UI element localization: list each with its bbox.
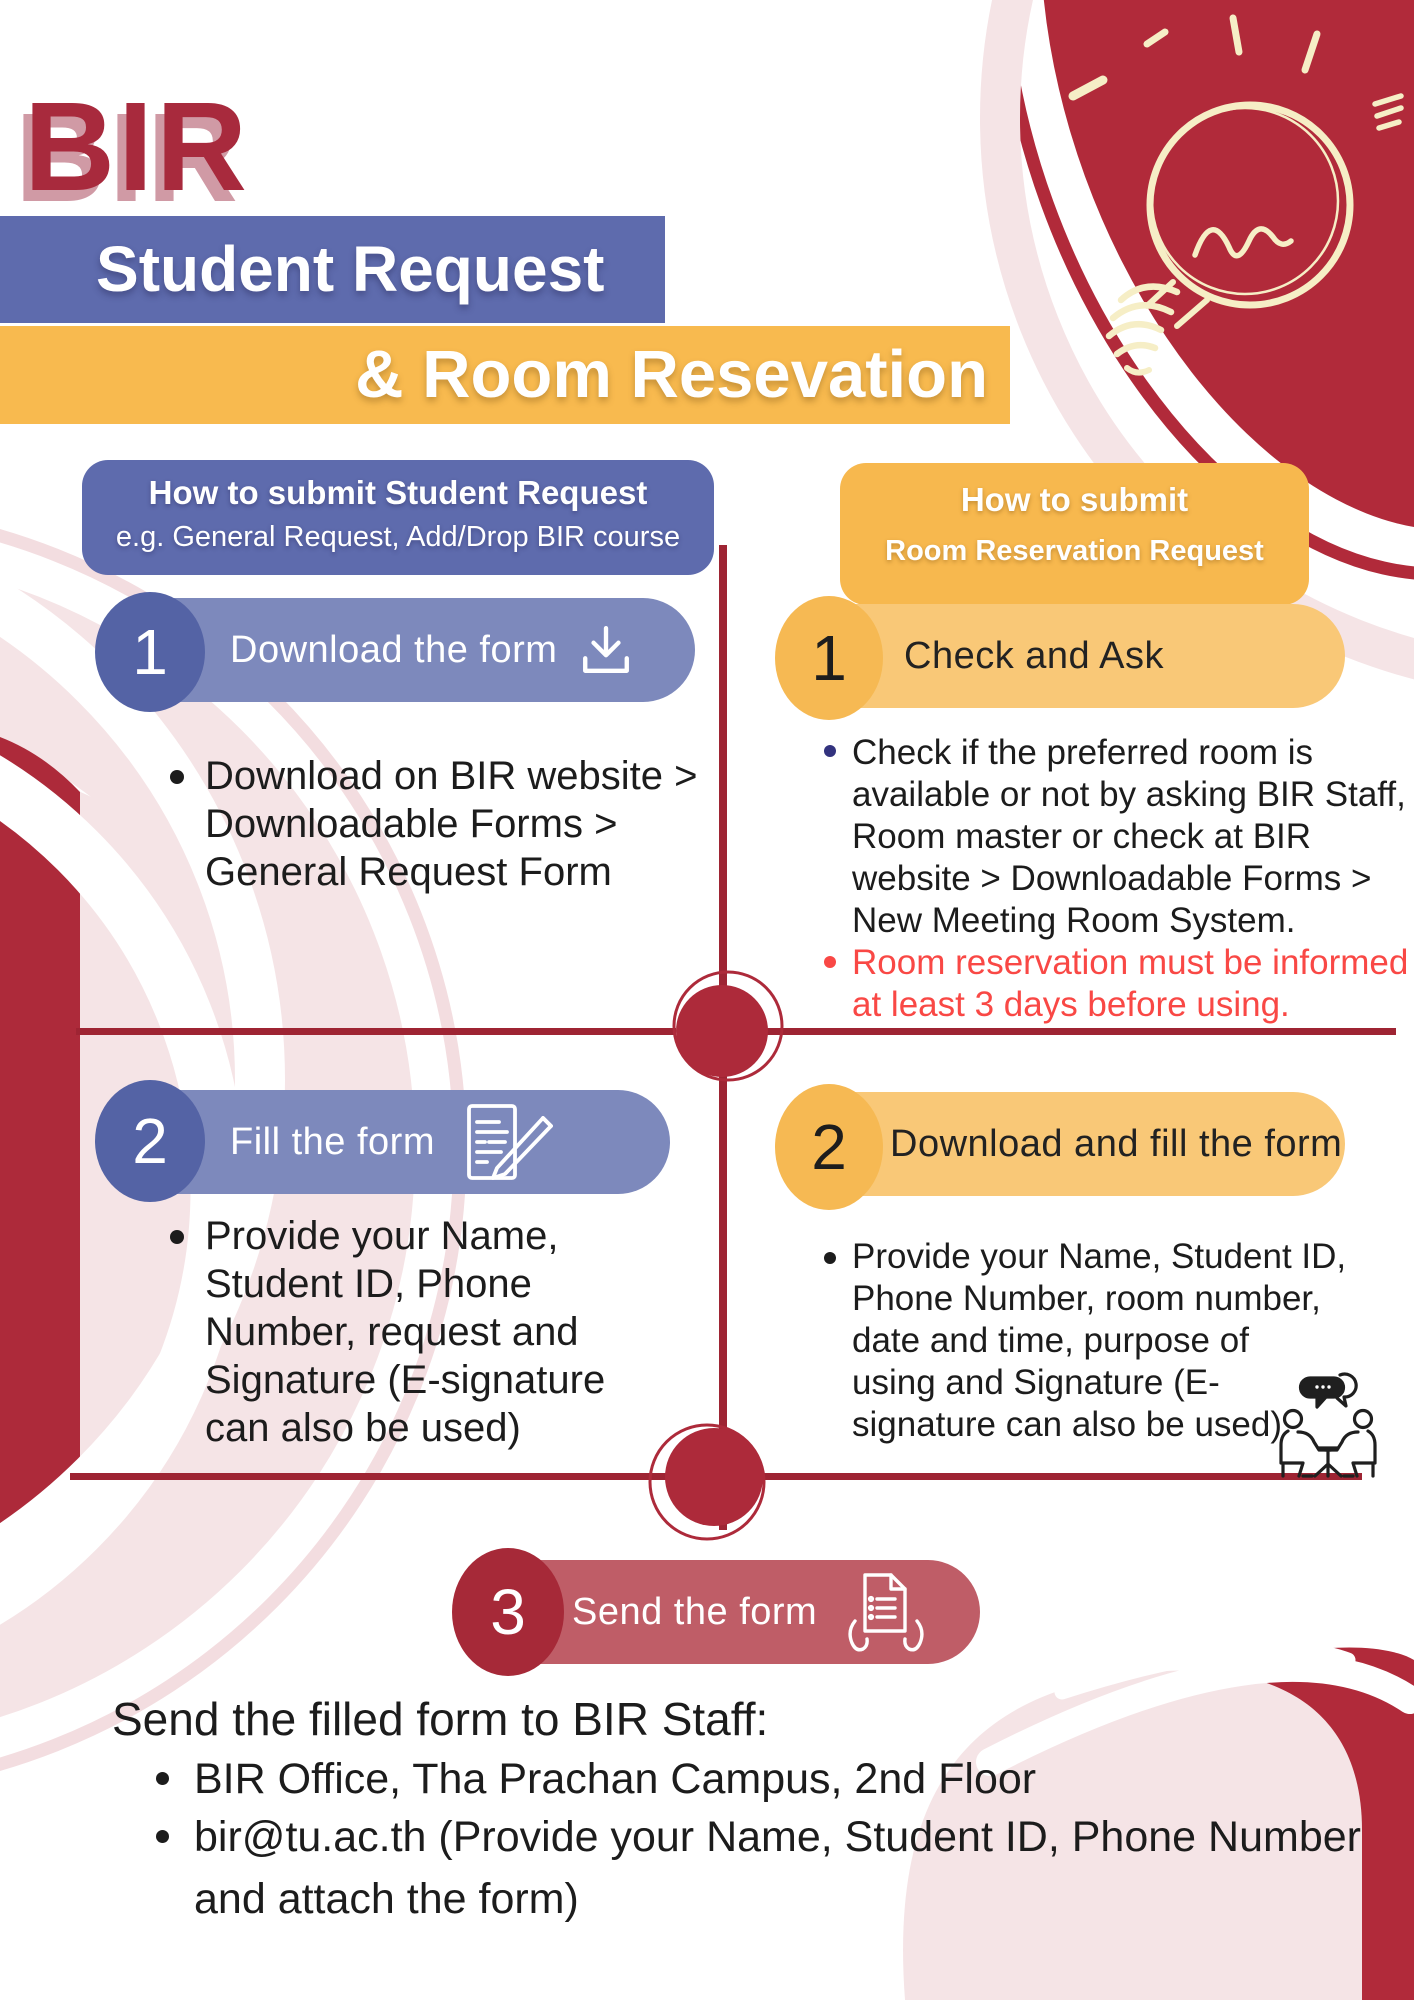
bullet-line: website > Downloadable Forms > (852, 858, 1406, 900)
junction-dot-1 (676, 985, 768, 1077)
right-step1-label: Check and Ask (904, 635, 1164, 678)
step3-number: 3 (452, 1548, 564, 1676)
right-header-title: How to submit (840, 481, 1309, 519)
bullet-line: Check if the preferred room is (852, 732, 1406, 774)
right-step1-bullets-main: Check if the preferred room is available… (852, 732, 1406, 942)
bullet-line: Download on BIR website > (205, 752, 698, 800)
right-step2-bullets: Provide your Name, Student ID, Phone Num… (852, 1236, 1346, 1446)
left-step2-label: Fill the form (230, 1121, 435, 1164)
footer-bullet2: bir@tu.ac.th (Provide your Name, Student… (194, 1806, 1361, 1930)
left-step1-bullet-dot (170, 770, 184, 784)
right-header-subtitle: Room Reservation Request (840, 535, 1309, 568)
left-step2-bullet-dot (170, 1230, 184, 1244)
right-step2-bullet-dot (824, 1252, 836, 1264)
right-step1-bullet2-dot (824, 956, 836, 968)
left-step1-bullets: Download on BIR website > Downloadable F… (205, 752, 698, 896)
step-number: 1 (132, 615, 168, 689)
footer-bullet2-line1: bir@tu.ac.th (Provide your Name, Student… (194, 1806, 1361, 1868)
horizontal-line-2-left (70, 1473, 666, 1480)
footer-bullet1: BIR Office, Tha Prachan Campus, 2nd Floo… (194, 1748, 1036, 1810)
bullet-line: available or not by asking BIR Staff, (852, 774, 1406, 816)
footer-bullet2-line2: and attach the form) (194, 1868, 1361, 1930)
step3-label: Send the form (572, 1591, 817, 1634)
bullet-line: using and Signature (E- (852, 1362, 1346, 1404)
left-column-header: How to submit Student Request e.g. Gener… (82, 460, 714, 575)
left-header-title: How to submit Student Request (82, 474, 714, 512)
bullet-line: Downloadable Forms > (205, 800, 698, 848)
bullet-line: Signature (E-signature (205, 1356, 605, 1404)
right-step1-bullets-alert: Room reservation must be informed at lea… (852, 942, 1408, 1026)
bullet-line-alert: at least 3 days before using. (852, 984, 1408, 1026)
bullet-line: General Request Form (205, 848, 698, 896)
left-header-subtitle: e.g. General Request, Add/Drop BIR cours… (82, 521, 714, 554)
right-step1-number: 1 (775, 596, 883, 720)
infographic-poster: { "title": { "text": "BIR" }, "banners":… (0, 0, 1414, 2000)
footer-bullet2-dot (156, 1830, 169, 1843)
bullet-line: Provide your Name, (205, 1212, 605, 1260)
page-title: BIR (24, 84, 250, 210)
left-step2-bullets: Provide your Name, Student ID, Phone Num… (205, 1212, 605, 1452)
bullet-line: New Meeting Room System. (852, 900, 1406, 942)
left-step1-number: 1 (95, 592, 205, 712)
step-number: 2 (132, 1104, 168, 1178)
footer-intro: Send the filled form to BIR Staff: (112, 1692, 768, 1746)
left-step1-label: Download the form (230, 629, 557, 672)
bullet-line: can also be used) (205, 1404, 605, 1452)
banner-secondary-label: & Room Resevation (355, 337, 988, 412)
step-number: 1 (811, 621, 847, 695)
left-step2-number: 2 (95, 1080, 205, 1202)
bullet-line: signature can also be used) (852, 1404, 1346, 1446)
step-number: 2 (811, 1110, 847, 1184)
right-step2-number: 2 (775, 1084, 883, 1210)
bullet-line: Phone Number, room number, (852, 1278, 1346, 1320)
banner-primary-label: Student Request (96, 233, 604, 305)
right-step1-bullet1-dot (824, 745, 836, 757)
bullet-line: Student ID, Phone (205, 1260, 605, 1308)
send-form-icon (843, 1569, 929, 1655)
horizontal-line-1-right (766, 1028, 1396, 1035)
bullet-line: Number, request and (205, 1308, 605, 1356)
banner-room-reservation: & Room Resevation (0, 326, 1010, 424)
junction-dot-2 (665, 1428, 763, 1526)
fill-form-icon (463, 1098, 555, 1186)
right-step2-label: Download and fill the form (890, 1123, 1342, 1166)
horizontal-line-2-right (760, 1473, 1362, 1480)
step-number: 3 (490, 1575, 526, 1649)
footer-bullet1-dot (156, 1772, 169, 1785)
bullet-line: date and time, purpose of (852, 1320, 1346, 1362)
right-column-header: How to submit Room Reservation Request (840, 463, 1309, 605)
bullet-line-alert: Room reservation must be informed (852, 942, 1408, 984)
download-icon (579, 623, 633, 677)
banner-student-request: Student Request (0, 216, 665, 323)
horizontal-line-1-left (76, 1028, 676, 1035)
bullet-line: Provide your Name, Student ID, (852, 1236, 1346, 1278)
bullet-line: Room master or check at BIR (852, 816, 1406, 858)
